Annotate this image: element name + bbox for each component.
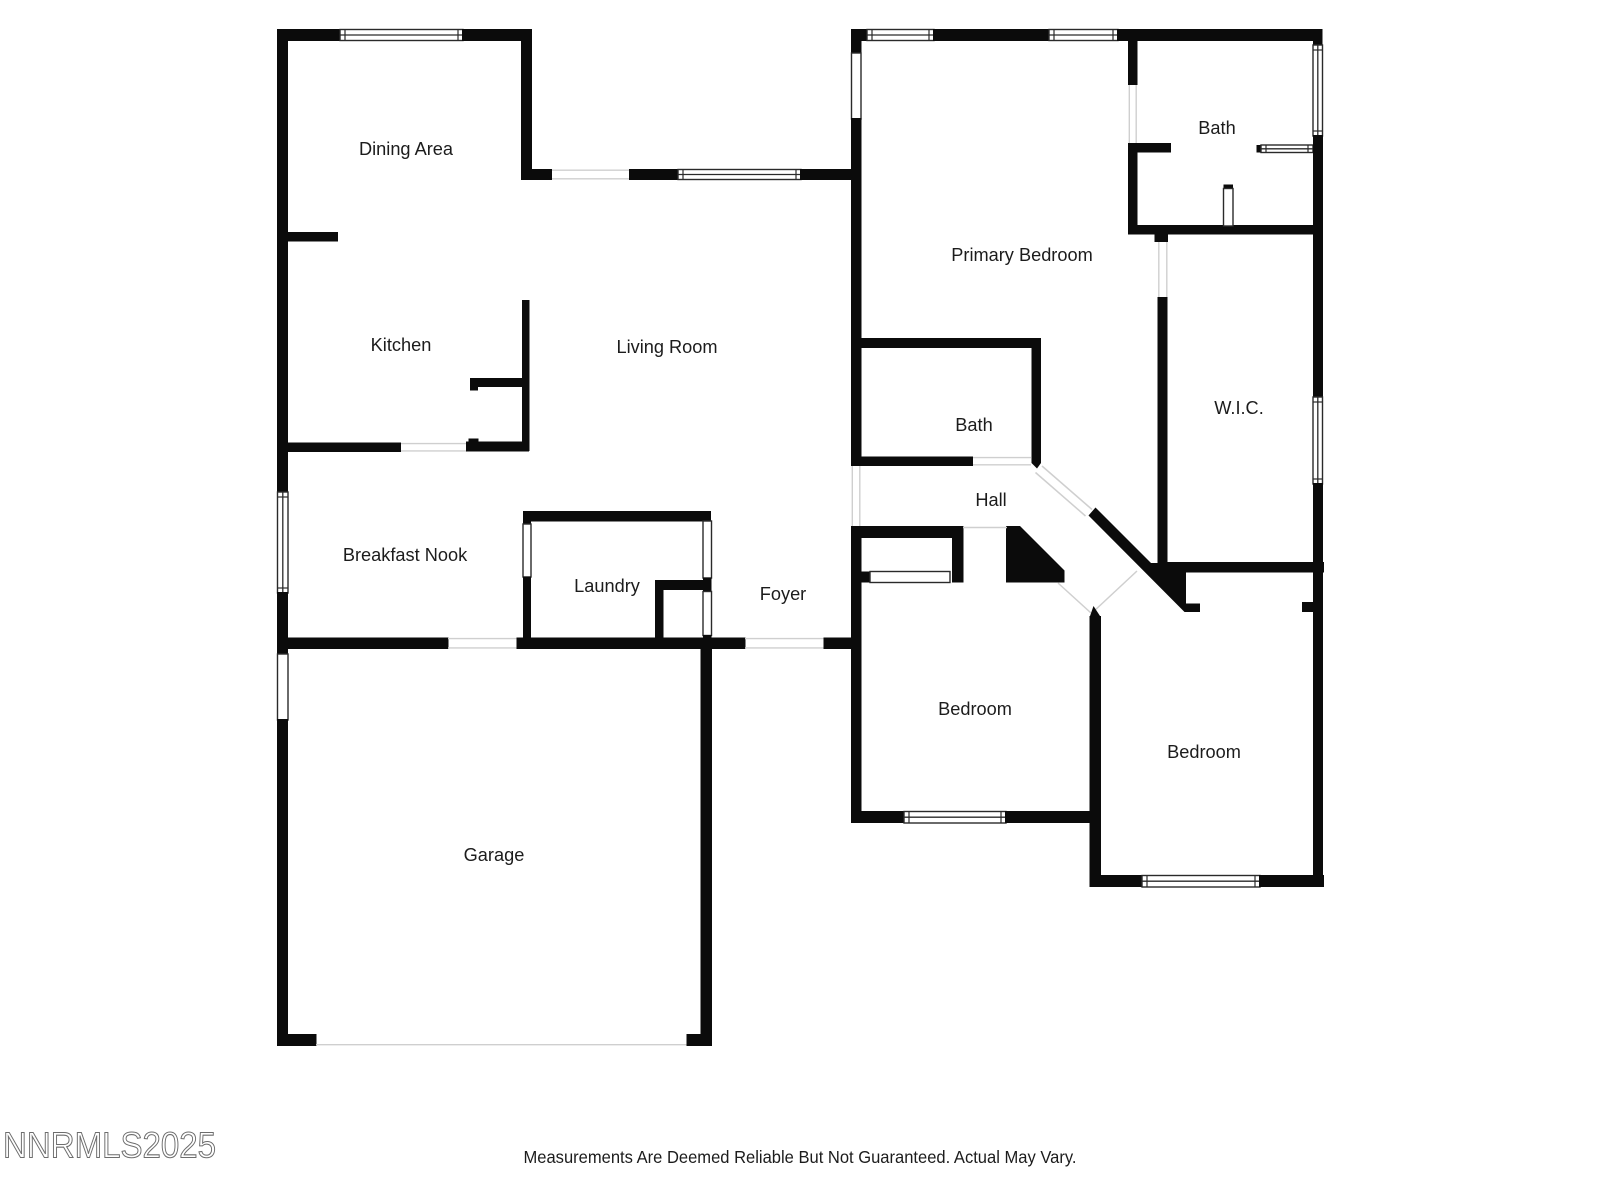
svg-text:Bedroom: Bedroom (1167, 742, 1241, 762)
svg-text:Measurements Are Deemed Reliab: Measurements Are Deemed Reliable But Not… (524, 1147, 1077, 1167)
svg-text:NNRMLS2025: NNRMLS2025 (3, 1125, 216, 1166)
svg-text:Laundry: Laundry (574, 576, 641, 596)
svg-text:Hall: Hall (975, 490, 1006, 510)
svg-text:Foyer: Foyer (760, 584, 807, 604)
svg-text:Bath: Bath (1198, 118, 1235, 138)
svg-text:Bath: Bath (955, 415, 992, 435)
svg-text:Garage: Garage (464, 845, 525, 865)
svg-text:W.I.C.: W.I.C. (1214, 398, 1264, 418)
svg-text:Bedroom: Bedroom (938, 699, 1012, 719)
svg-text:Breakfast Nook: Breakfast Nook (343, 545, 468, 565)
svg-text:Primary Bedroom: Primary Bedroom (951, 245, 1093, 265)
svg-text:Living Room: Living Room (616, 337, 717, 357)
svg-text:Kitchen: Kitchen (371, 335, 432, 355)
svg-text:Dining Area: Dining Area (359, 139, 454, 159)
